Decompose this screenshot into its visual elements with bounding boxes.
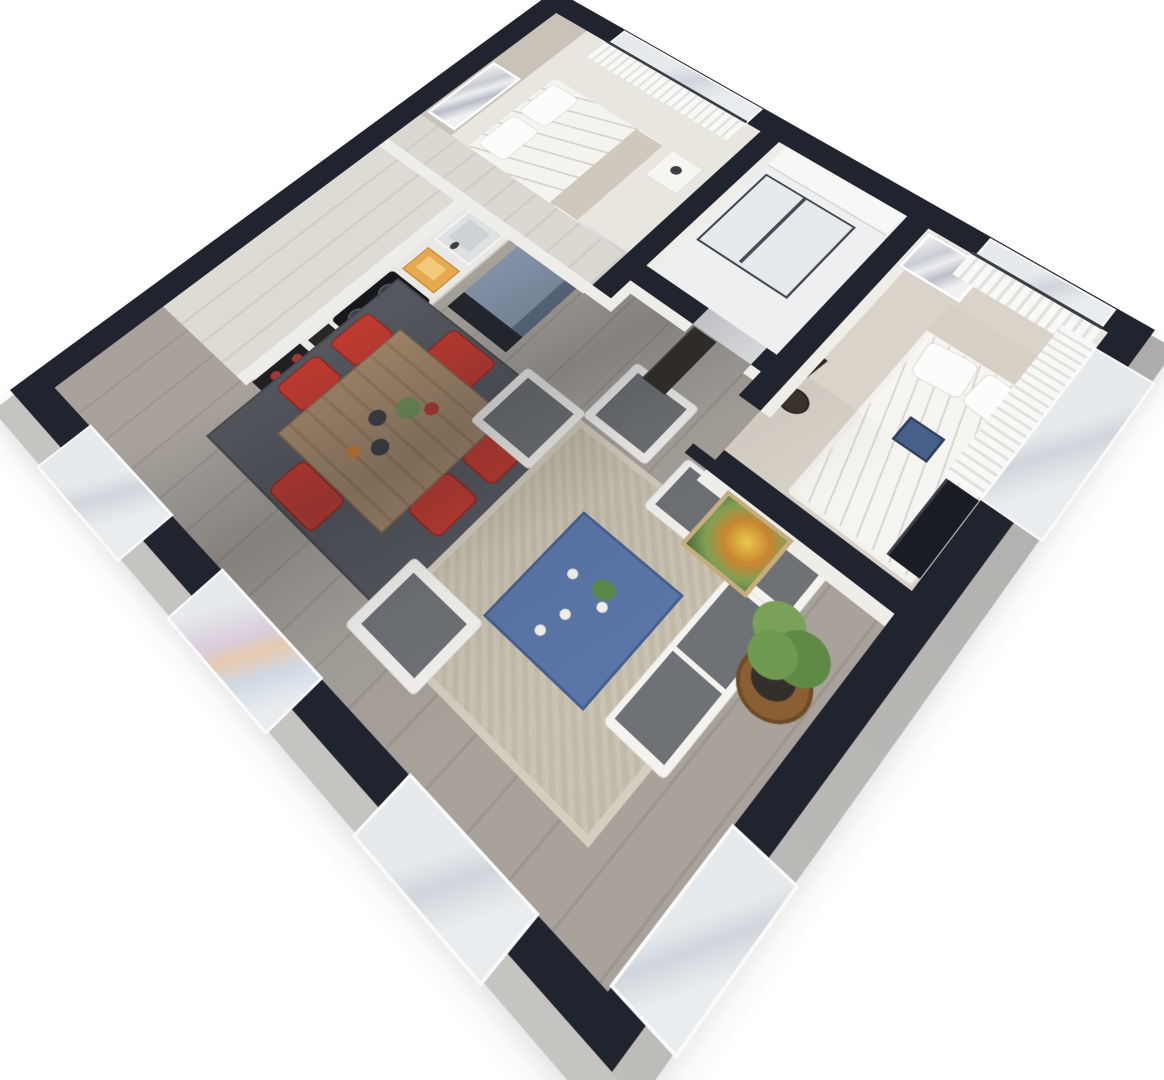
apartment-3d-scene — [10, 0, 1155, 1072]
floor-plan-render — [0, 0, 1164, 1080]
